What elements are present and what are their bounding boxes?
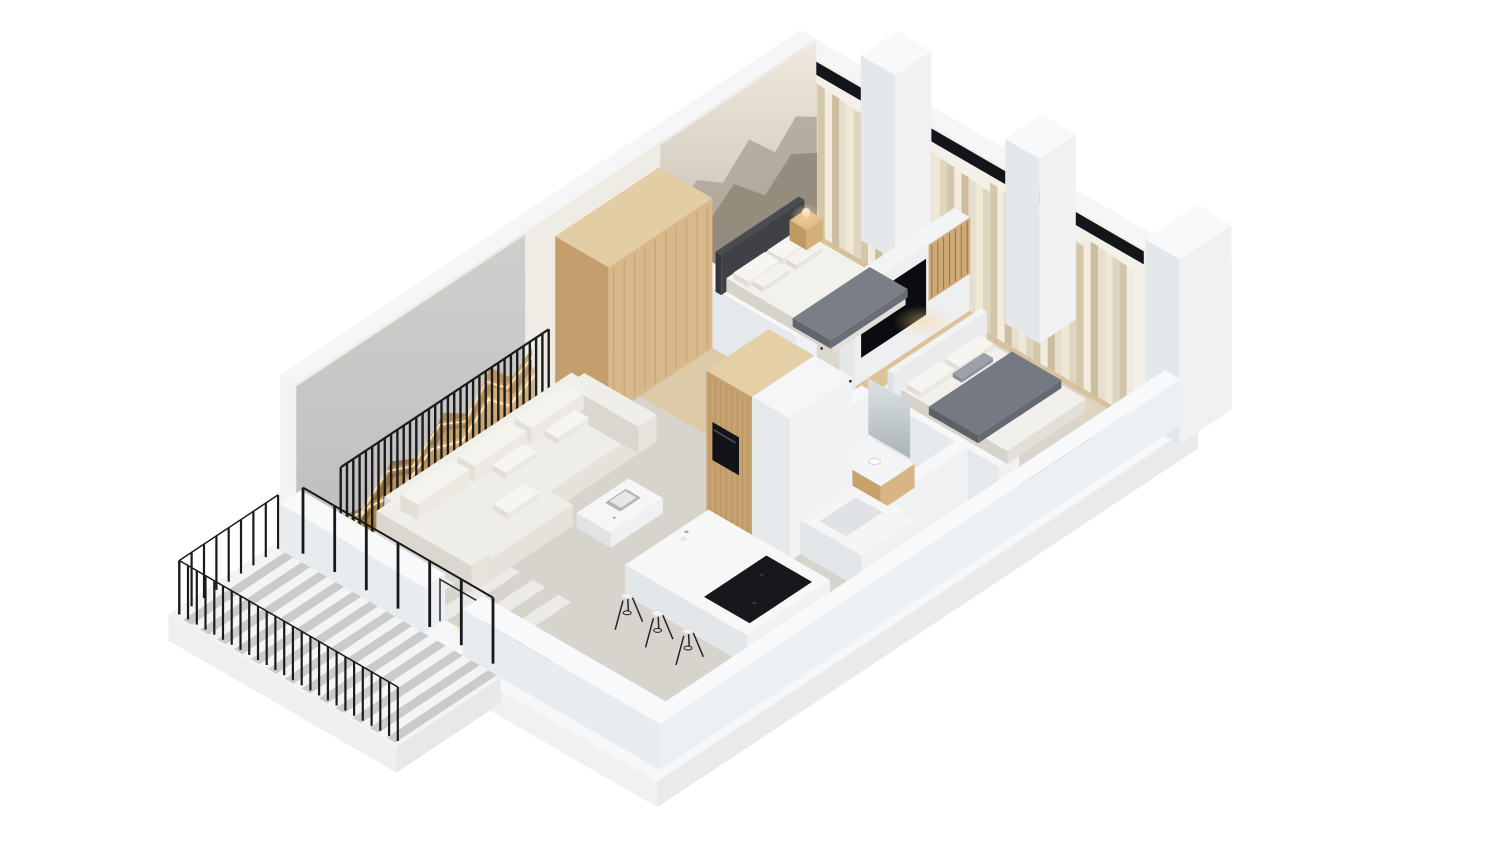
facade-corner-east-side-right [1180,225,1232,445]
facade-pier-middle-side-left [1005,139,1039,344]
flowers [684,531,688,533]
curtain-panel [997,188,1004,354]
curtain-panel [1098,247,1105,413]
curtain-panel [990,183,997,350]
door-handle-bedroom1 [820,347,823,350]
door-handle-bedroom2 [849,380,852,383]
curtain-panel [832,94,839,258]
curtain-panel [1077,242,1084,400]
cooktop-burner-2 [752,602,756,604]
curtain-panel [847,104,854,267]
cooktop-burner-1 [759,574,763,576]
bar-stool-3-seat [683,628,694,634]
curtain-panel [839,99,846,262]
bed1-headboard-side-left [716,252,722,295]
facade-pier-middle-side-right [1039,135,1075,344]
apartment-render [0,0,1500,844]
curtain-panel [1112,257,1119,421]
decor-orange [613,517,616,519]
curtain-panel [1105,252,1112,417]
flower-vase [681,538,686,541]
bathroom-sink [869,459,881,465]
lamp-glow [790,204,822,228]
kitchen-cabinet-white-side-left [752,397,790,561]
curtain-panel [1091,242,1098,408]
floorplan-stage [0,0,1500,844]
front-wall-southeast-side-left [645,715,660,770]
bar-stool-1-seat [622,593,633,599]
facade-pier-north-side-left [861,55,895,260]
curtain-panel [1084,237,1091,404]
bar-stool-2-seat [652,611,663,617]
curtain-panel [854,109,861,271]
curtain-panel [825,89,832,254]
